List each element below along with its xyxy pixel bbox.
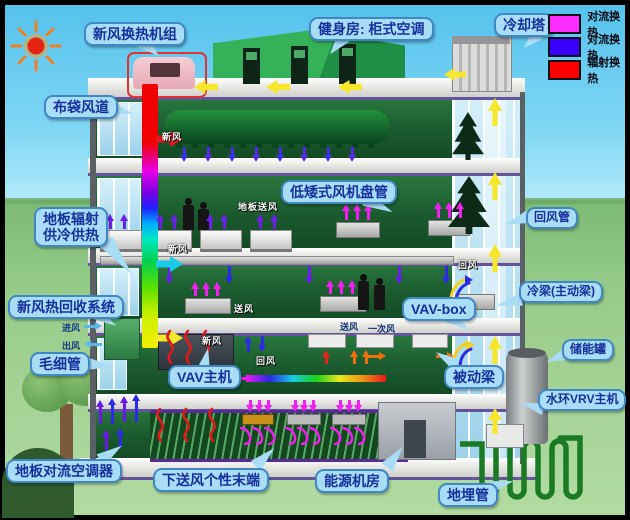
orange-right-arrow <box>368 352 386 361</box>
water-vrv-unit <box>486 424 524 448</box>
mixed-flow-gradient-pipe <box>246 375 386 382</box>
highlight-outline <box>127 52 207 98</box>
supply-down-arrow <box>228 147 237 162</box>
cabinet-ac-screen <box>294 50 305 58</box>
supply-up-arrow <box>270 214 279 229</box>
supply-down-arrow <box>300 147 309 162</box>
fan-coil-up-arrow <box>202 282 211 296</box>
cabinet-ac-screen <box>246 52 257 60</box>
callout-ground-pipe: 地埋管 <box>438 483 498 507</box>
supply-text: 送风 <box>340 320 358 333</box>
legend-row: 辐射换热 <box>548 54 630 86</box>
callout-active-beam: 冷梁(主动梁) <box>519 281 603 303</box>
floor-supply-vent <box>250 230 292 252</box>
callout-fresh-air-ahu: 新风换热机组 <box>84 22 186 46</box>
supply-up-arrow <box>206 214 215 229</box>
supply-down-arrow <box>276 147 285 162</box>
heat-recovery-unit <box>104 318 140 360</box>
inlet-arrow <box>84 322 102 331</box>
callout-vav-host: VAV主机 <box>168 365 241 389</box>
person-figure <box>374 278 385 310</box>
orange-up-arrow <box>350 350 359 364</box>
terminal-down-arrow <box>255 400 264 412</box>
terminal-down-arrow <box>336 400 345 412</box>
ceiling-down-arrow <box>395 266 404 284</box>
terminal-down-arrow <box>345 400 354 412</box>
cooling-tower-top <box>452 36 510 44</box>
passive-beam-unit <box>308 334 346 348</box>
low-fan-coil-unit <box>336 222 380 238</box>
fan-coil-up-arrow <box>445 202 454 218</box>
flow-text-supply: 送风 <box>234 302 254 315</box>
fabric-bag-duct <box>164 110 390 144</box>
supply-up-arrow <box>156 214 165 229</box>
callout-low-fan-coil: 低矮式风机盘管 <box>281 180 397 204</box>
flow-text-fresh-air: 新风 <box>168 242 188 255</box>
underfloor-terminal-vent <box>332 414 366 425</box>
callout-cooling-tower: 冷却塔 <box>494 13 554 37</box>
terminal-down-arrow <box>354 400 363 412</box>
floor-convection-up-arrow <box>120 396 129 422</box>
terminal-down-arrow <box>300 400 309 412</box>
flow-text-floor-supply: 地板送风 <box>238 200 278 213</box>
cabinet-ac-screen <box>342 48 353 56</box>
sun-icon <box>8 18 64 74</box>
tree-trunk <box>60 404 73 464</box>
passive-beam-unit <box>356 334 394 348</box>
energy-room-door <box>404 420 426 458</box>
callout-vav-box: VAV-box <box>402 297 476 321</box>
callout-gym-ac: 健身房: 柜式空调 <box>309 17 434 41</box>
air-curl-arrows <box>328 426 366 446</box>
underfloor-terminal-vent <box>242 414 274 425</box>
supply-down-arrow <box>204 147 213 162</box>
hvac-building-cutaway-diagram: 新风 地板送风 新风 送风 回风 <box>0 0 630 520</box>
supply-down-arrow <box>252 147 261 162</box>
callout-floor-radiant-line1: 地板辐射 <box>43 211 99 227</box>
supply-up-arrow <box>256 214 265 229</box>
supply-down-arrow <box>348 147 357 162</box>
orange-up-arrow <box>322 350 331 364</box>
callout-floor-radiant: 地板辐射 供冷供热 <box>34 207 108 247</box>
air-curl-arrows <box>283 426 321 446</box>
flow-text-return: 回风 <box>458 258 478 271</box>
supply-down-arrow <box>180 147 189 162</box>
person-figure <box>358 274 369 310</box>
callout-capillary: 毛细管 <box>30 352 90 376</box>
callout-energy-room: 能源机房 <box>315 469 389 493</box>
storage-tank-top <box>508 348 546 358</box>
ceiling-down-arrow <box>305 266 314 284</box>
inlet-text: 进风 <box>62 321 80 334</box>
fan-coil-up-arrow <box>342 204 351 220</box>
legend-label: 辐射换热 <box>587 54 630 86</box>
floor-convection-up-arrow <box>116 428 125 448</box>
fan-coil-up-arrow <box>326 280 335 294</box>
cooling-tower-unit <box>452 36 512 92</box>
underfloor-terminal-vent <box>287 414 321 425</box>
callout-heat-recovery: 新风热回收系统 <box>8 295 124 319</box>
radiant-heat-waves <box>152 406 230 444</box>
outlet-text: 出风 <box>62 339 80 352</box>
ceiling-down-arrow <box>225 266 234 284</box>
primary-air-text: 一次风 <box>368 322 395 335</box>
callout-return-duct: 回风管 <box>526 207 578 229</box>
floor-convection-up-arrow <box>96 400 105 424</box>
floor-convection-up-arrow <box>132 394 141 422</box>
supply-down-arrow <box>324 147 333 162</box>
floor-supply-vent <box>200 230 242 252</box>
terminal-down-arrow <box>264 400 273 412</box>
flow-text-return: 回风 <box>256 354 276 367</box>
fan-coil-up-arrow <box>191 282 200 296</box>
fan-coil-up-arrow <box>353 204 362 220</box>
callout-underfloor-terminal: 下送风个性末端 <box>153 468 269 492</box>
flow-up-arrow <box>244 336 253 352</box>
person-figure <box>183 198 194 230</box>
supply-up-arrow <box>220 214 229 229</box>
floor-convection-up-arrow <box>102 430 111 450</box>
supply-up-arrow <box>170 214 179 229</box>
supply-up-arrow <box>120 214 129 229</box>
flow-text-fresh-air: 新风 <box>162 130 182 143</box>
terminal-down-arrow <box>309 400 318 412</box>
flow-down-arrow <box>258 336 267 352</box>
air-curl-arrows <box>238 426 276 446</box>
terminal-down-arrow <box>291 400 300 412</box>
callout-passive-beam: 被动梁 <box>444 365 504 389</box>
callout-storage-tank: 储能罐 <box>562 339 614 361</box>
fan-coil-up-arrow <box>213 282 222 296</box>
floor-convection-up-arrow <box>108 398 117 424</box>
legend-swatch-red <box>548 60 581 80</box>
terminal-down-arrow <box>246 400 255 412</box>
outlet-arrow <box>84 340 102 349</box>
chilled-beam-unit <box>412 334 448 348</box>
flow-text-fresh-air: 新风 <box>202 334 222 347</box>
callout-water-vrv: 水环VRV主机 <box>538 389 626 411</box>
low-fan-coil-unit <box>185 298 231 314</box>
fan-coil-up-arrow <box>434 202 443 218</box>
callout-floor-convection-ac: 地板对流空调器 <box>6 459 122 483</box>
fan-coil-up-arrow <box>337 280 346 294</box>
fan-coil-up-arrow <box>456 202 465 218</box>
fan-coil-up-arrow <box>348 280 357 294</box>
callout-floor-radiant-line2: 供冷供热 <box>43 227 99 243</box>
callout-bag-duct: 布袋风道 <box>44 95 118 119</box>
